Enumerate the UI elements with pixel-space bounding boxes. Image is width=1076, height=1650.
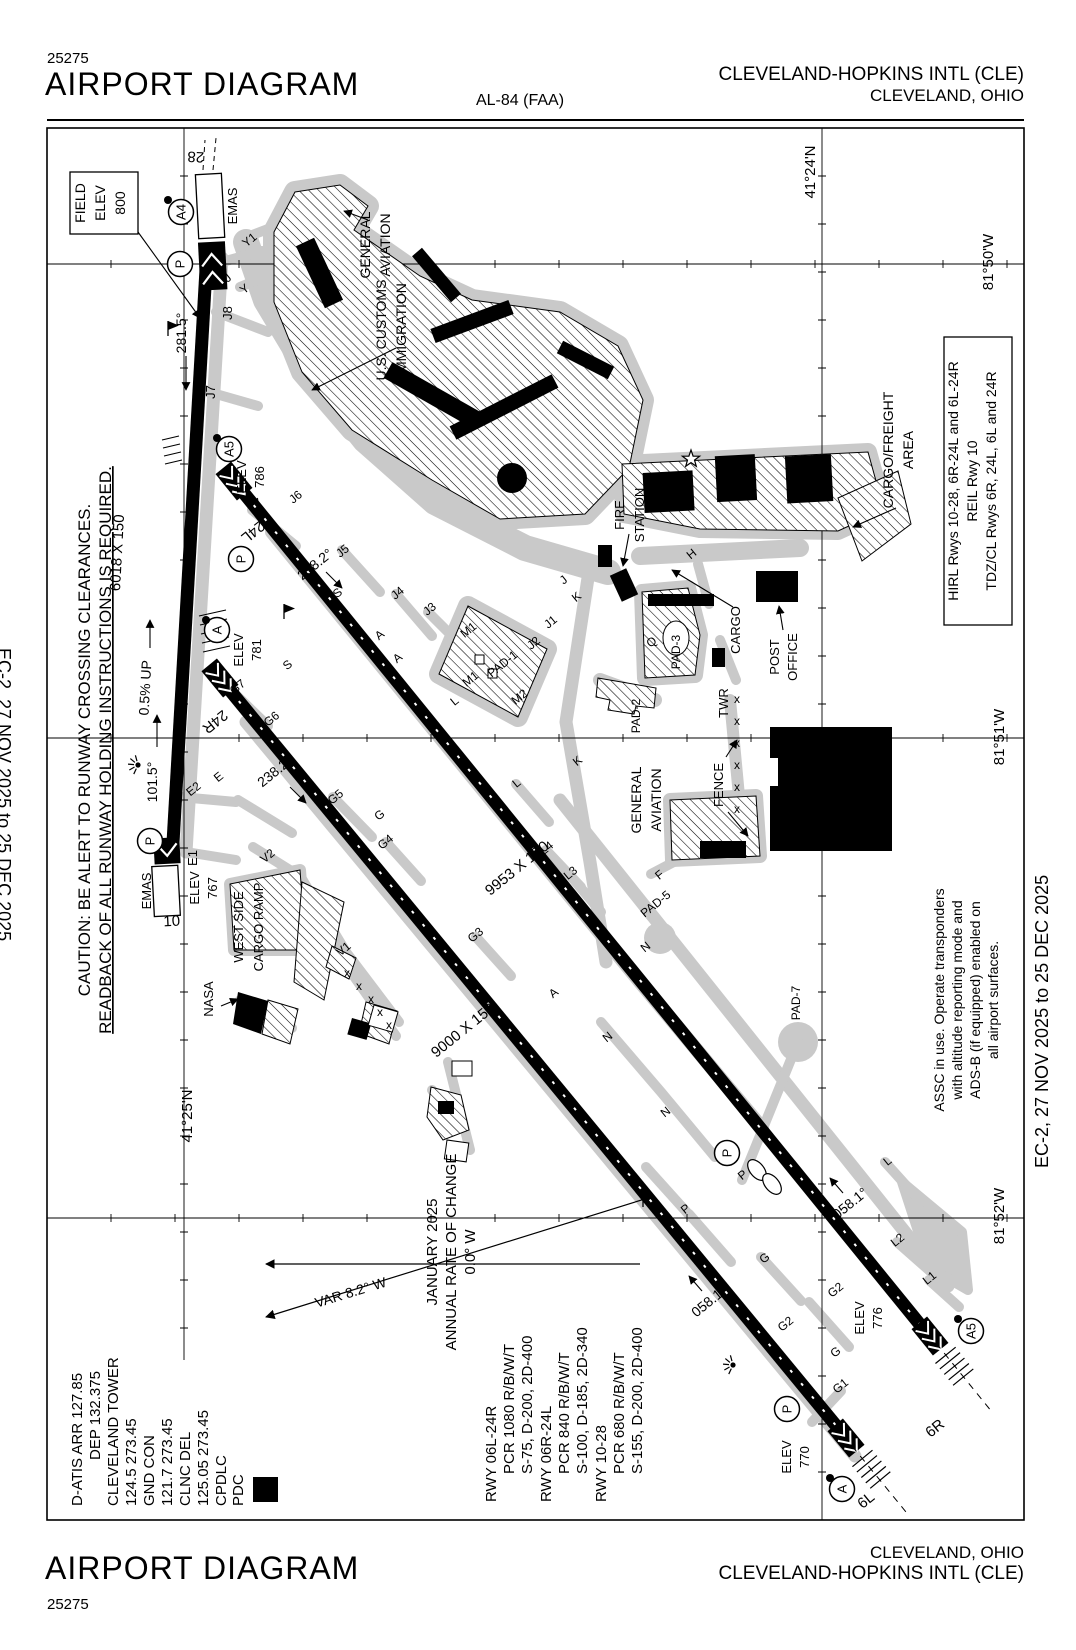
map-label: PAD-3 [669, 634, 683, 669]
map-label: POST [767, 639, 782, 674]
pennant-icon [284, 604, 295, 619]
map-label: EMAS [225, 187, 240, 224]
map-label: 281.5° [173, 313, 189, 354]
tower-building [712, 648, 725, 667]
fence-x: x [344, 966, 350, 980]
map-label: 0.5% UP [136, 660, 155, 716]
map-label: 058.1° [829, 1184, 871, 1222]
map-label: S [280, 657, 295, 673]
map-label: J7 [203, 385, 218, 399]
map-label: 10 [163, 913, 181, 931]
field-elev-line: ELEV [92, 184, 108, 220]
variation-line: JANUARY 2025 [424, 1198, 441, 1305]
map-label: 770 [797, 1446, 812, 1468]
runway-data-line: S-155, D-200, 2D-400 [629, 1327, 646, 1474]
map-label: U.S. CUSTOMS [373, 280, 389, 381]
map-label: J6 [286, 487, 305, 506]
map-label: E1 [185, 850, 200, 866]
circled-point-label: A5 [222, 441, 237, 457]
variation-line: 0.0° W [462, 1229, 479, 1275]
map-label: STATION [632, 488, 647, 542]
runway-data-line: S-75, D-200, 2D-400 [519, 1336, 536, 1474]
map-label: ELEV [234, 460, 249, 494]
runway-data-line: S-100, D-185, 2D-340 [574, 1327, 591, 1474]
light-icon [128, 755, 141, 774]
map-label: 24R [199, 706, 231, 737]
map-label: CARGO RAMP [251, 883, 266, 972]
airport-diagram-page: 25275 AIRPORT DIAGRAM AL-84 (FAA) CLEVEL… [0, 0, 1076, 1650]
map-label: A [372, 627, 387, 643]
field-elev-line: 800 [112, 191, 128, 215]
circled-point-label: A [210, 625, 225, 634]
map-label: 6L [854, 1489, 878, 1513]
map-label: 9000 X 150 [428, 1000, 498, 1062]
runway-data-line: PCR 840 R/B/W/T [556, 1352, 573, 1474]
map-label: WEST SIDE [231, 891, 246, 963]
comm-line: PDC [230, 1474, 247, 1506]
map-label: 767 [205, 877, 220, 899]
circled-point-label: A [835, 1484, 850, 1493]
map-label: A [390, 650, 405, 666]
map-label: GENERAL [357, 211, 373, 278]
large-building [770, 727, 892, 851]
lighting-note-line: TDZ/CL Rwys 6R, 24L, 6L and 24R [983, 371, 999, 590]
map-label: J8 [220, 306, 235, 320]
map-label: J1 [541, 612, 560, 631]
map-label: ELEV [779, 1440, 794, 1474]
runway-data-line: RWY 10-28 [593, 1425, 610, 1502]
circled-point-label: A4 [174, 204, 189, 220]
lighting-note-line: REIL Rwy 10 [964, 440, 980, 521]
circled-point-label: P [720, 1149, 735, 1158]
fence-x: x [368, 992, 374, 1006]
field-elev-line: FIELD [72, 183, 88, 223]
comm-line: GND CON [141, 1435, 158, 1506]
circled-point-label: P [143, 837, 158, 846]
fence-x: x [734, 714, 740, 728]
map-label: G2 [825, 1279, 847, 1300]
map-label: PAD-7 [789, 985, 803, 1020]
map-label: EMAS [139, 872, 154, 909]
comm-line: 125.05 273.45 [195, 1410, 212, 1506]
field-elev-leader [138, 232, 200, 318]
runway-data-line: PCR 1080 R/B/W/T [501, 1344, 518, 1474]
map-label: 781 [249, 639, 264, 661]
fire-station-building [618, 572, 630, 598]
fence-x: x [734, 780, 740, 794]
map-label: IMMIGRATION [393, 283, 409, 377]
caution-note-line: CAUTION: BE ALERT TO RUNWAY CROSSING CLE… [75, 504, 94, 997]
map-label: 81°50'W [980, 233, 997, 290]
circled-point-label: P [780, 1405, 795, 1414]
map-label: ELEV [231, 633, 246, 667]
map-label: AVIATION [377, 213, 393, 276]
map-label: OFFICE [785, 633, 800, 681]
map-label: E [211, 769, 226, 785]
map-label: TWR [716, 688, 731, 718]
point-dot [826, 1474, 834, 1482]
terminal-building [274, 185, 643, 519]
fence-x: x [386, 1018, 392, 1032]
map-label: NASA [201, 981, 216, 1017]
map-label: 101.5° [144, 762, 160, 803]
comm-line: CLEVELAND TOWER [105, 1357, 122, 1506]
runway-data-line: PCR 680 R/B/W/T [611, 1352, 628, 1474]
map-label: AVIATION [648, 768, 664, 831]
nasa-leader [221, 999, 238, 1006]
airport-diagram-chart: D xxxxxxxxxxx A4PA5PAPPPA5A CAUTION: BE … [0, 0, 1076, 1650]
fence-x: x [734, 802, 740, 816]
fence-x: x [734, 758, 740, 772]
map-label: FENCE [711, 763, 726, 807]
comm-line: 121.7 273.45 [159, 1418, 176, 1506]
map-label: FIRE [612, 500, 627, 530]
assc-note-line: all airport surfaces. [985, 941, 1001, 1059]
map-label: 6R [922, 1416, 948, 1441]
helipad-markers [744, 1156, 785, 1197]
map-label: AREA [900, 430, 916, 469]
map-label: 41°24'N [802, 145, 819, 198]
map-label: GENERAL [628, 766, 644, 833]
assc-note-line: with altitude reporting mode and [949, 900, 965, 1100]
map-label: PAD-2 [629, 698, 643, 733]
lighting-note-line: HIRL Rwys 10-28, 6R-24L and 6L-24R [945, 361, 961, 600]
point-dot [213, 434, 221, 442]
map-label: CARGO/FREIGHT [880, 391, 896, 508]
variation-line: VAR 8.2° W [313, 1274, 389, 1311]
point-dot [954, 1315, 962, 1323]
comm-line: DEP 132.375 [87, 1371, 104, 1460]
map-label: G [371, 807, 387, 824]
map-label: ELEV [187, 871, 202, 905]
comm-line: CPDLC [213, 1455, 230, 1506]
fence-x: x [734, 692, 740, 706]
post-office-leader [779, 606, 783, 630]
pdc-symbol: D [258, 1484, 275, 1496]
fence-x: x [734, 736, 740, 750]
post-office-building [756, 571, 798, 602]
circled-point-label: A5 [964, 1323, 979, 1339]
map-label: 786 [252, 466, 267, 488]
map-label: 81°51'W [991, 708, 1008, 765]
point-dot [164, 196, 172, 204]
point-dot [202, 616, 210, 624]
fence-x: x [356, 979, 362, 993]
comm-line: D-ATIS ARR 127.85 [69, 1373, 86, 1506]
map-label: G2 [775, 1313, 797, 1334]
map-label: 81°52'W [991, 1187, 1008, 1244]
comm-line: 124.5 273.45 [123, 1418, 140, 1506]
assc-note-line: ADS-B (if equipped) enabled on [967, 901, 983, 1099]
map-label: J [557, 573, 570, 588]
assc-note-line: ASSC in use. Operate transponders [931, 888, 947, 1111]
circled-point-label: P [234, 555, 249, 564]
map-label: CARGO [728, 606, 743, 654]
map-label: 776 [870, 1307, 885, 1329]
map-label: 28 [187, 148, 205, 166]
map-label: 41°25'N [179, 1089, 196, 1142]
variation-line: ANNUAL RATE OF CHANGE [443, 1154, 460, 1351]
comm-line: CLNC DEL [177, 1432, 194, 1506]
fence-x: x [377, 1005, 383, 1019]
map-label: ELEV [852, 1301, 867, 1335]
map-label: A [546, 985, 561, 1001]
map-label: 6018 X 150 [107, 514, 128, 592]
runway-data-line: RWY 06L-24R [483, 1406, 500, 1502]
heading-058-arrow-1 [830, 1178, 843, 1193]
runway-data-line: RWY 06R-24L [538, 1406, 555, 1502]
circled-point-label: P [173, 260, 188, 269]
map-label: G [827, 1344, 843, 1361]
fire-station-leader [623, 534, 629, 566]
light-icon [723, 1355, 736, 1374]
